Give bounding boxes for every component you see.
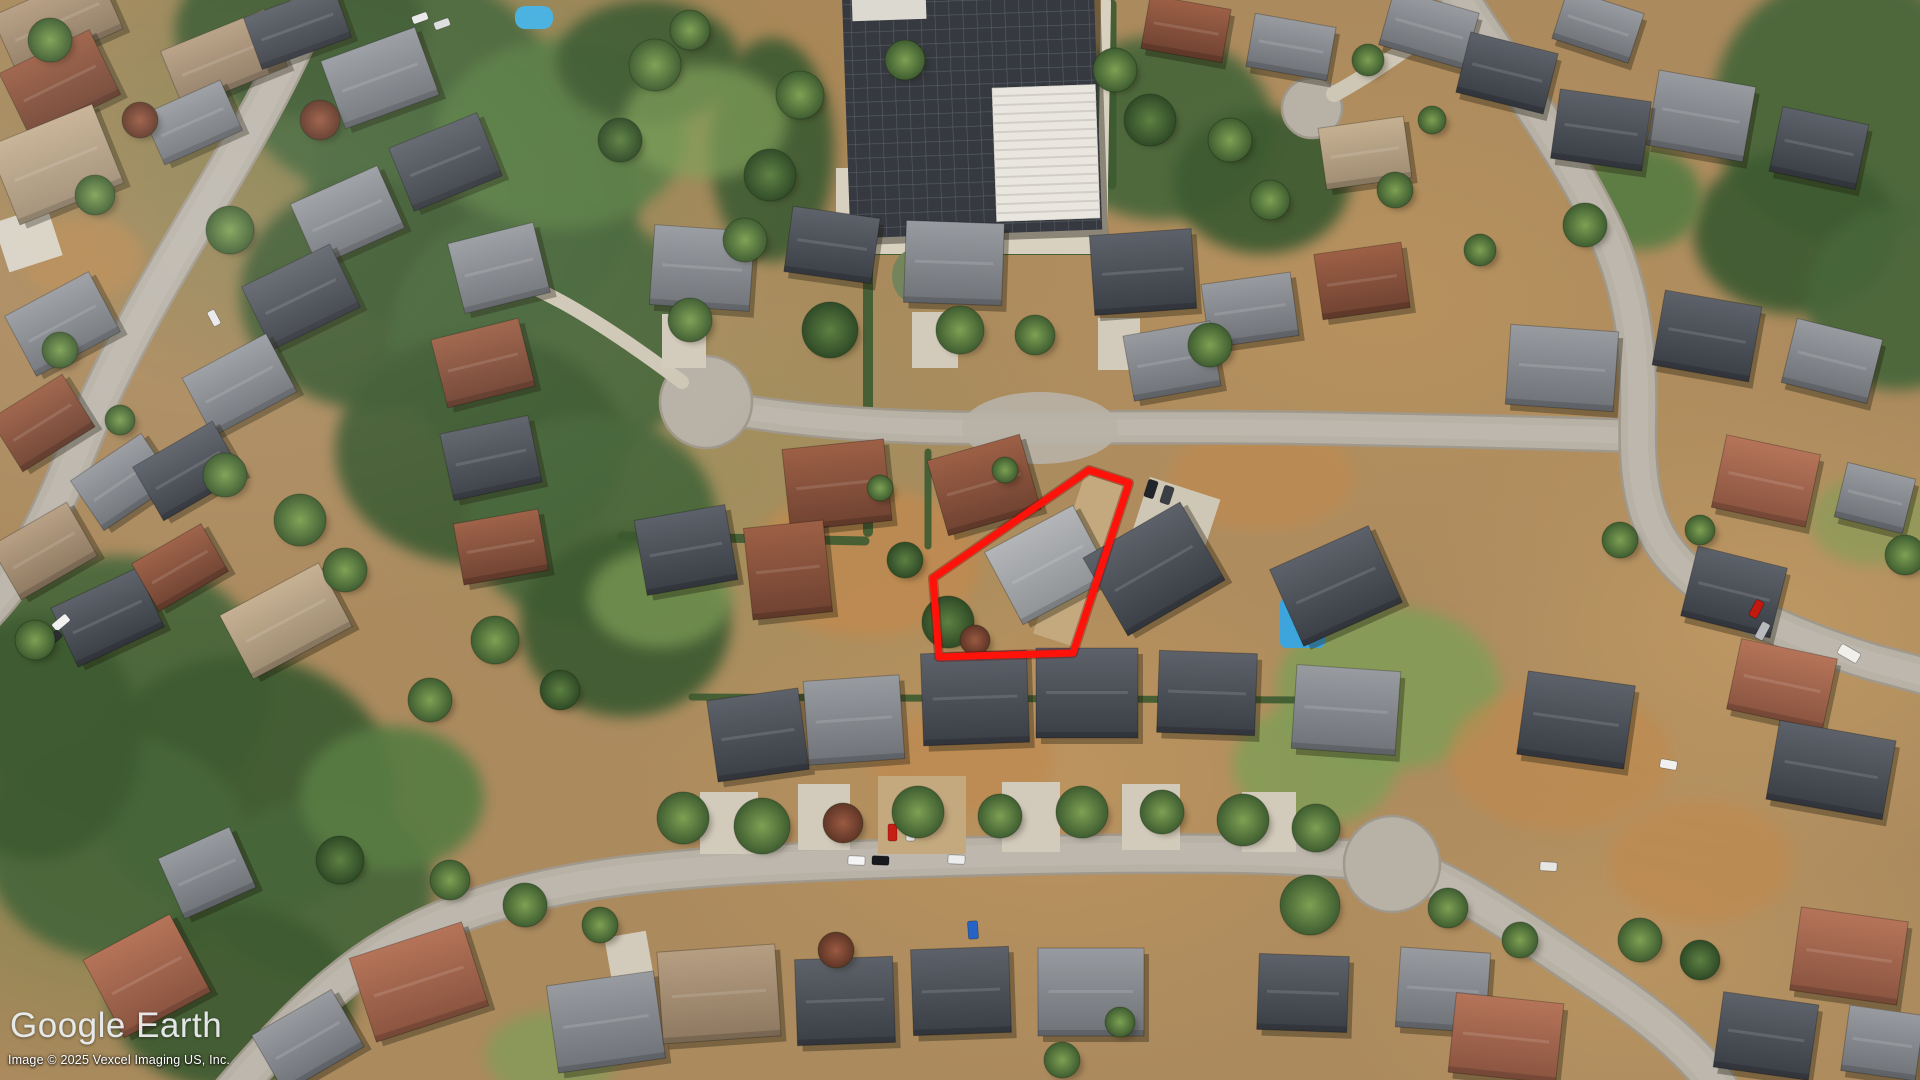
house — [1679, 546, 1792, 645]
tree — [1602, 522, 1638, 558]
tree — [540, 670, 580, 710]
tree — [1292, 804, 1340, 852]
house — [1840, 1005, 1920, 1080]
tree — [471, 616, 519, 664]
tree — [206, 206, 254, 254]
house — [707, 687, 815, 788]
tree — [723, 218, 767, 262]
house — [1089, 228, 1202, 321]
house — [911, 946, 1017, 1042]
swimming-pool — [515, 6, 553, 29]
house — [1256, 953, 1354, 1038]
car — [948, 855, 965, 865]
tree — [105, 405, 135, 435]
tree — [936, 306, 984, 354]
house — [920, 650, 1034, 752]
tree — [1105, 1007, 1135, 1037]
tree — [75, 175, 115, 215]
tree — [1280, 875, 1340, 935]
tree — [1124, 94, 1176, 146]
tree — [960, 625, 990, 655]
house — [1505, 324, 1624, 418]
tree — [734, 798, 790, 854]
tree — [1563, 203, 1607, 247]
tree — [430, 860, 470, 900]
house — [1765, 720, 1901, 826]
tree — [1418, 106, 1446, 134]
tree — [1044, 1042, 1080, 1078]
tree — [316, 836, 364, 884]
tree — [978, 794, 1022, 838]
tree — [582, 907, 618, 943]
tree — [1618, 918, 1662, 962]
car — [872, 856, 889, 866]
e — [1608, 800, 1792, 924]
tree — [28, 18, 72, 62]
tree — [1428, 888, 1468, 928]
cul-de-sac — [1344, 816, 1440, 912]
house — [1550, 0, 1649, 70]
r — [851, 0, 926, 21]
tree — [1464, 234, 1496, 266]
house — [783, 206, 885, 290]
imagery-attribution: Image © 2025 Vexcel Imaging US, Inc. — [8, 1053, 230, 1067]
tree — [657, 792, 709, 844]
car — [848, 856, 865, 866]
house — [1156, 650, 1262, 742]
tree — [892, 786, 944, 838]
house — [1550, 89, 1657, 178]
tree — [887, 542, 923, 578]
tree — [1140, 790, 1184, 834]
house — [546, 970, 671, 1079]
house — [743, 520, 838, 626]
white-tent-roof — [992, 84, 1101, 222]
house — [803, 674, 910, 771]
house — [795, 956, 901, 1052]
house — [1789, 907, 1913, 1012]
tree — [867, 475, 893, 501]
house — [1712, 992, 1823, 1080]
tree — [1502, 922, 1538, 958]
google-earth-viewport: Google Earth Image © 2025 Vexcel Imaging… — [0, 0, 1920, 1080]
tree — [1093, 48, 1137, 92]
tree — [1015, 315, 1055, 355]
tree — [203, 453, 247, 497]
tree — [42, 332, 78, 368]
house — [634, 504, 744, 602]
tree — [823, 803, 863, 843]
tree — [1250, 180, 1290, 220]
tree — [670, 10, 710, 50]
tree — [598, 118, 642, 162]
house — [1314, 242, 1416, 326]
car — [967, 921, 978, 940]
tree — [802, 302, 858, 358]
tree — [1217, 794, 1269, 846]
tree — [122, 102, 158, 138]
house — [1447, 993, 1568, 1080]
tree — [776, 71, 824, 119]
house — [1245, 13, 1341, 87]
tree — [1056, 786, 1108, 838]
house — [657, 944, 787, 1050]
house — [1651, 290, 1767, 389]
tree — [1188, 323, 1232, 367]
tree — [1208, 118, 1252, 162]
tree — [15, 620, 55, 660]
tree — [992, 457, 1018, 483]
aerial-imagery[interactable] — [0, 0, 1920, 1080]
house — [1516, 671, 1640, 776]
tree — [274, 494, 326, 546]
house — [903, 220, 1009, 312]
tree — [300, 100, 340, 140]
tree — [885, 40, 925, 80]
tree — [323, 548, 367, 592]
tree — [744, 149, 796, 201]
house — [1291, 664, 1406, 761]
car — [1540, 862, 1557, 872]
house — [1710, 435, 1825, 534]
tree — [503, 883, 547, 927]
tree — [1377, 172, 1413, 208]
car — [888, 824, 897, 841]
tree — [629, 39, 681, 91]
house — [1036, 648, 1143, 744]
tree — [668, 298, 712, 342]
tree — [1685, 515, 1715, 545]
tree — [1352, 44, 1384, 76]
car — [207, 309, 222, 327]
tree — [1885, 535, 1920, 575]
google-earth-logo: Google Earth — [10, 1006, 222, 1046]
tree — [818, 932, 854, 968]
house — [1454, 32, 1563, 121]
tree — [1680, 940, 1720, 980]
tree — [408, 678, 452, 722]
